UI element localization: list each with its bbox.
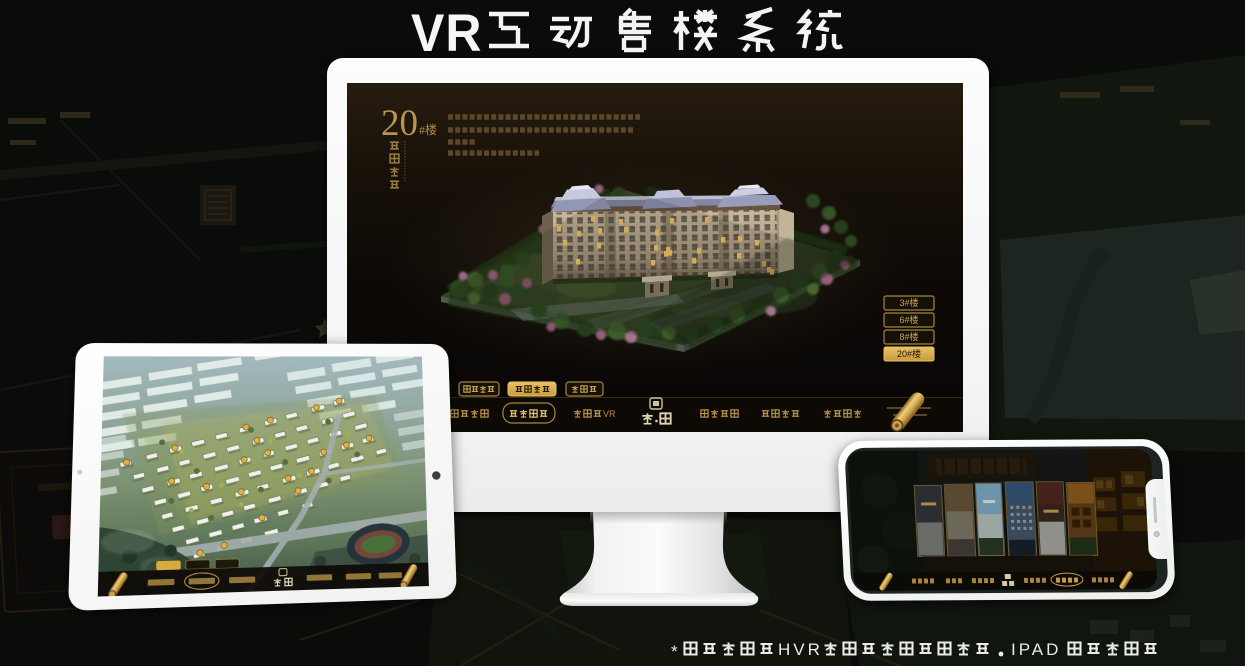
svg-text:VR: VR — [603, 409, 616, 419]
svg-text:3#楼: 3#楼 — [899, 297, 918, 308]
svg-text:8#楼: 8#楼 — [899, 331, 918, 342]
svg-text:20#楼: 20#楼 — [897, 348, 921, 359]
svg-text:HVR: HVR — [778, 640, 823, 659]
svg-text:6#楼: 6#楼 — [899, 314, 918, 325]
svg-text:20: 20 — [381, 103, 418, 144]
svg-text:IPAD: IPAD — [1011, 640, 1061, 659]
svg-text:#楼: #楼 — [419, 122, 437, 137]
svg-text:*: * — [671, 642, 678, 661]
svg-text:VR: VR — [411, 2, 482, 58]
